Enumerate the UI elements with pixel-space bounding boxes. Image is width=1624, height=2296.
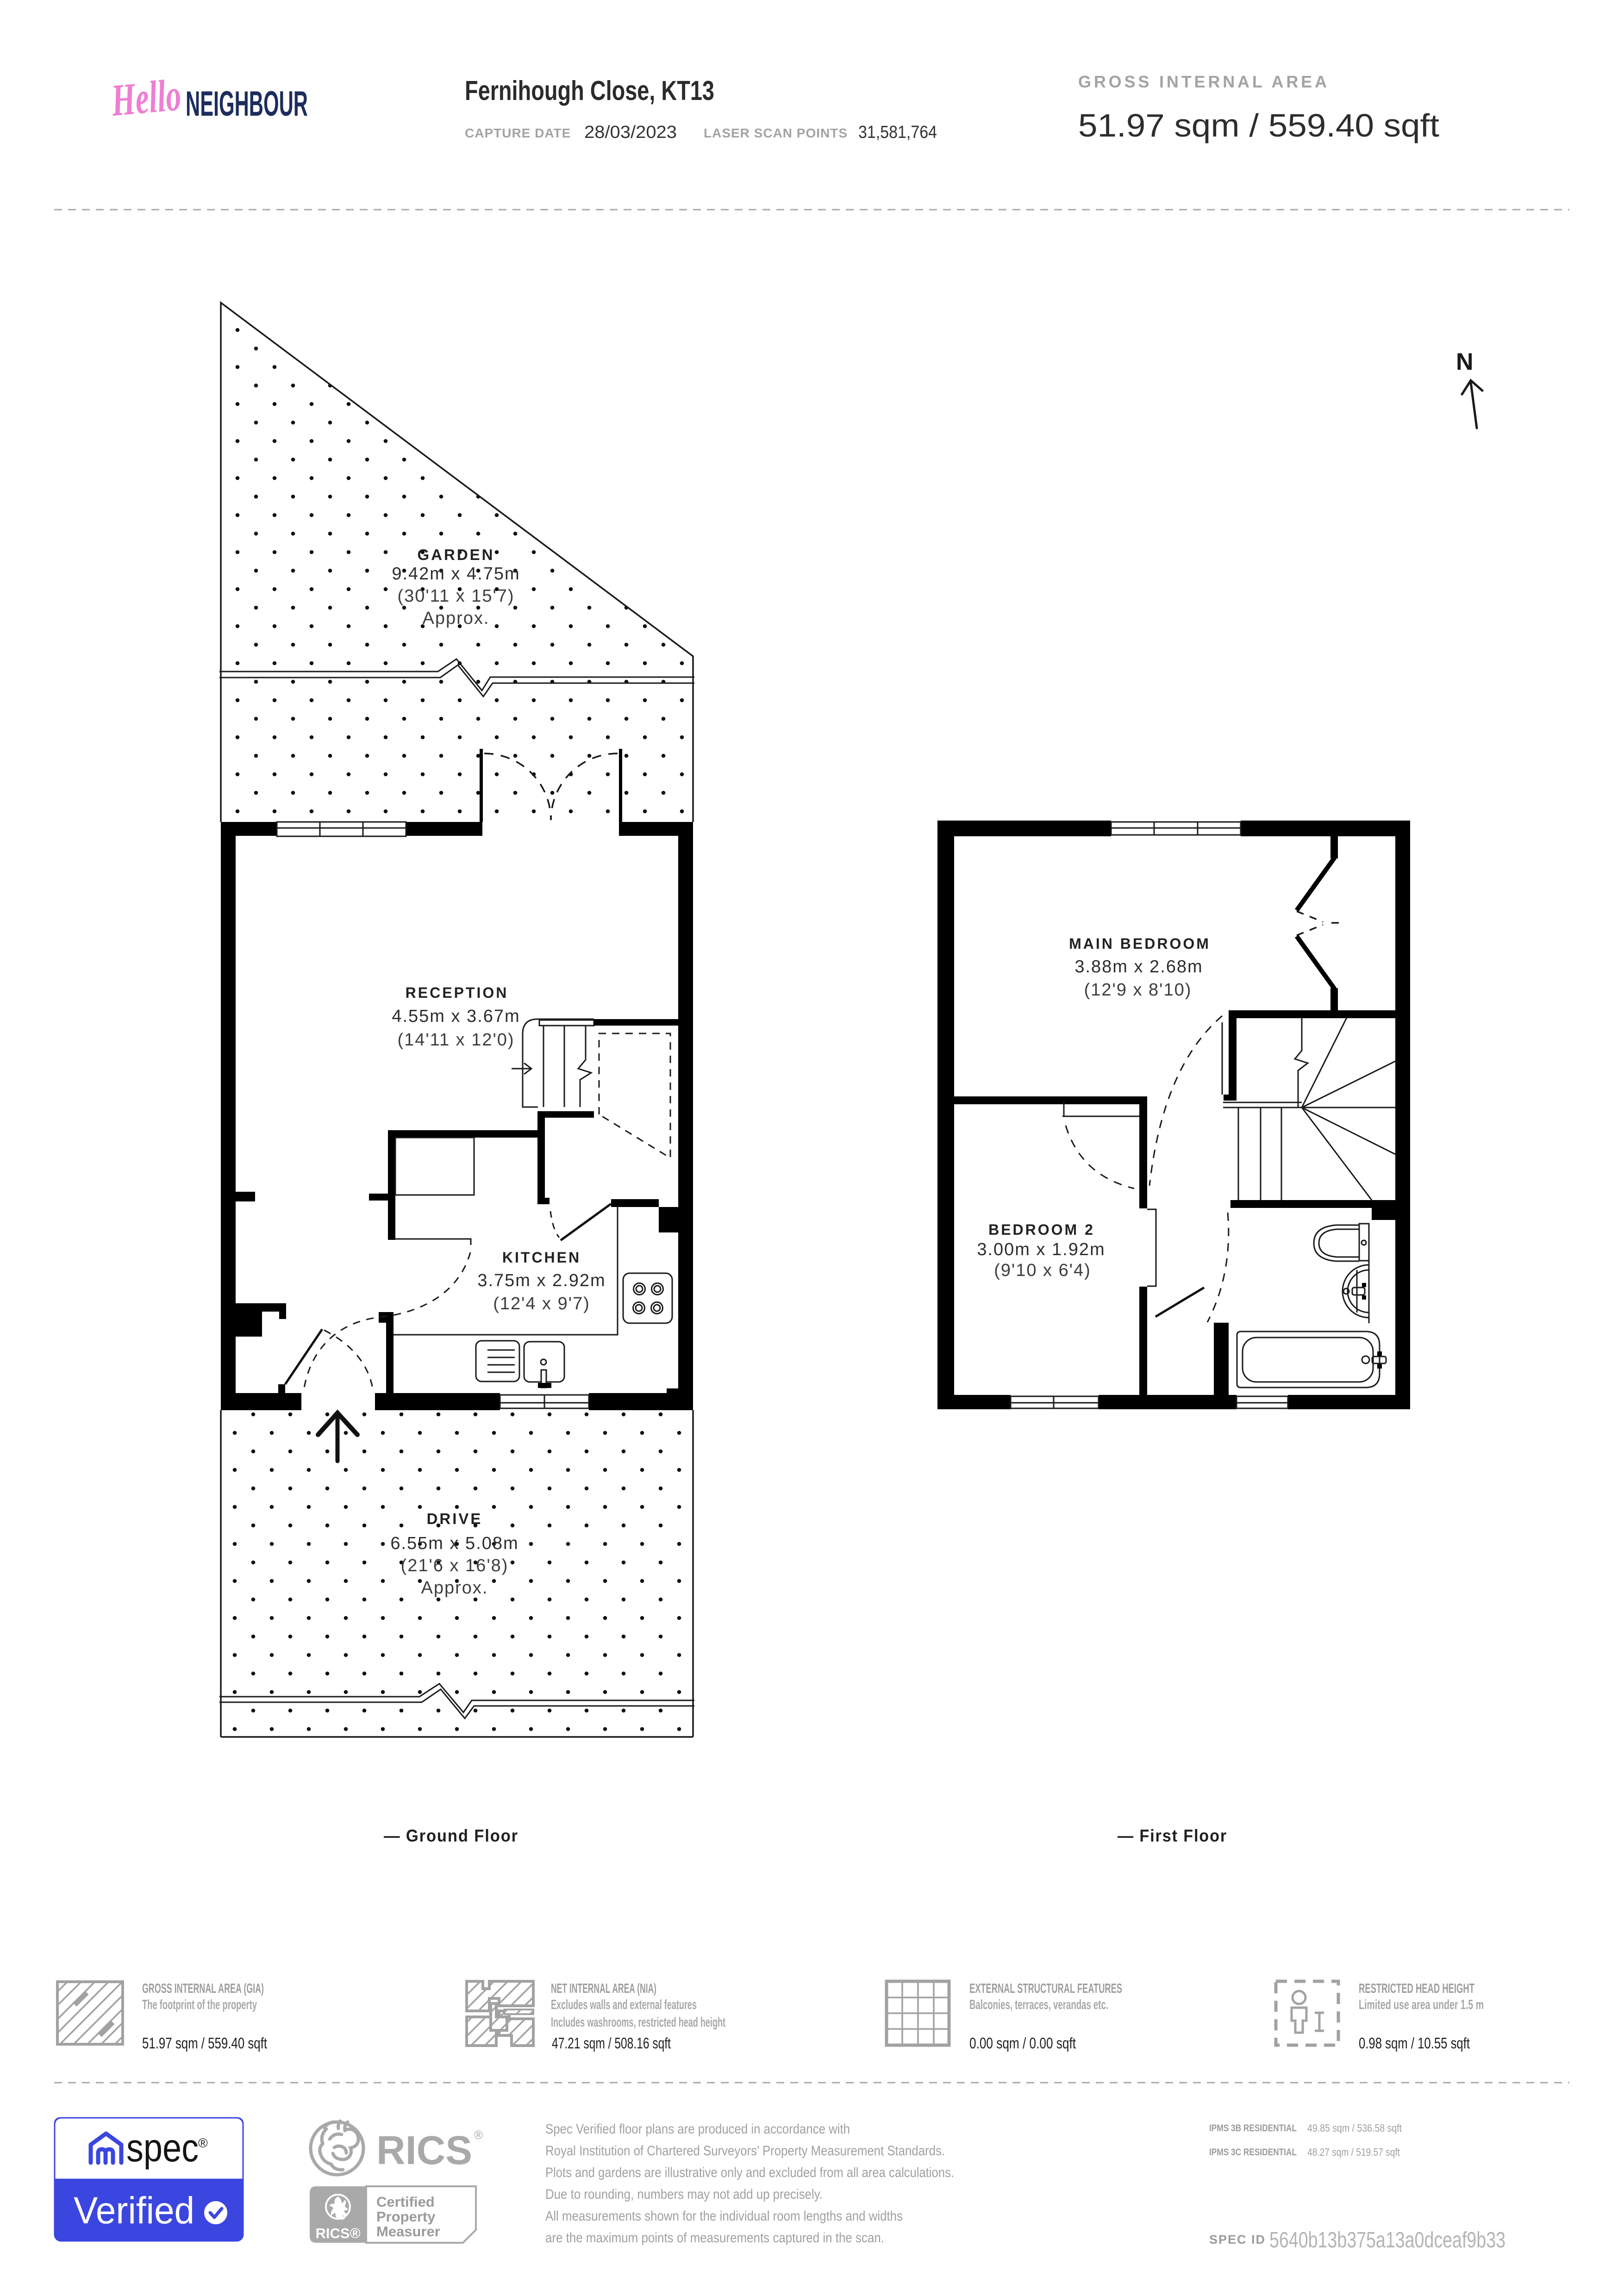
svg-text:Measurer: Measurer	[376, 2223, 440, 2240]
svg-text:Approx.: Approx.	[421, 1578, 488, 1598]
svg-text:51.97 sqm / 559.40 sqft: 51.97 sqm / 559.40 sqft	[1078, 107, 1439, 143]
svg-text:IPMS 3B RESIDENTIAL: IPMS 3B RESIDENTIAL	[1209, 2123, 1297, 2134]
svg-text:Fernihough Close, KT13: Fernihough Close, KT13	[465, 75, 714, 106]
svg-text:(30'11 x 15'7): (30'11 x 15'7)	[397, 586, 514, 606]
svg-text:Includes washrooms, restricted: Includes washrooms, restricted head heig…	[551, 2015, 725, 2030]
svg-text:BEDROOM 2: BEDROOM 2	[988, 1221, 1095, 1238]
svg-text:RICS®: RICS®	[316, 2225, 361, 2241]
svg-text:Royal Institution of Chartered: Royal Institution of Chartered Surveyors…	[545, 2143, 945, 2159]
svg-text:(12'4 x 9'7): (12'4 x 9'7)	[493, 1294, 590, 1313]
svg-text:are the maximum points of meas: are the maximum points of measurements c…	[545, 2230, 884, 2246]
svg-text:(12'9 x 8'10): (12'9 x 8'10)	[1084, 980, 1192, 1000]
svg-text:N: N	[1456, 348, 1474, 375]
svg-text:EXTERNAL STRUCTURAL FEATURES: EXTERNAL STRUCTURAL FEATURES	[969, 1981, 1122, 1996]
svg-text:The footprint of the property: The footprint of the property	[142, 1997, 257, 2012]
svg-text:(14'11 x 12'0): (14'11 x 12'0)	[397, 1030, 514, 1050]
svg-text:3.88m x 2.68m: 3.88m x 2.68m	[1074, 957, 1203, 977]
svg-text:0.98 sqm / 10.55 sqft: 0.98 sqm / 10.55 sqft	[1359, 2035, 1470, 2052]
svg-text:All measurements shown for the: All measurements shown for the individua…	[545, 2209, 903, 2224]
svg-text:NEIGHBOUR: NEIGHBOUR	[186, 84, 308, 124]
svg-text:3.00m x 1.92m: 3.00m x 1.92m	[977, 1240, 1105, 1259]
svg-text:49.85 sqm / 536.58 sqft: 49.85 sqm / 536.58 sqft	[1307, 2122, 1402, 2134]
svg-text:6.55m x 5.08m: 6.55m x 5.08m	[390, 1534, 518, 1553]
svg-text:0.00 sqm / 0.00 sqft: 0.00 sqm / 0.00 sqft	[969, 2035, 1076, 2052]
svg-text:31,581,764: 31,581,764	[858, 123, 937, 142]
svg-text:(9'10 x 6'4): (9'10 x 6'4)	[994, 1261, 1091, 1280]
svg-text:— First Floor: — First Floor	[1118, 1826, 1227, 1845]
svg-text:RESTRICTED HEAD HEIGHT: RESTRICTED HEAD HEIGHT	[1359, 1981, 1474, 1996]
svg-text:Limited use area under 1.5 m: Limited use area under 1.5 m	[1359, 1997, 1484, 2012]
svg-text:GARDEN: GARDEN	[417, 546, 494, 563]
svg-text:DRIVE: DRIVE	[427, 1510, 483, 1527]
svg-text:— Ground Floor: — Ground Floor	[384, 1826, 518, 1845]
svg-text:KITCHEN: KITCHEN	[502, 1249, 581, 1266]
svg-text:SPEC ID: SPEC ID	[1209, 2233, 1266, 2246]
svg-text:®: ®	[198, 2136, 208, 2150]
svg-text:NET INTERNAL AREA (NIA): NET INTERNAL AREA (NIA)	[551, 1981, 656, 1996]
svg-text:Verified: Verified	[74, 2190, 194, 2232]
svg-text:Excludes walls and external fe: Excludes walls and external features	[551, 1997, 697, 2012]
svg-text:47.21 sqm / 508.16 sqft: 47.21 sqm / 508.16 sqft	[552, 2035, 671, 2052]
svg-text:(21'6 x 16'8): (21'6 x 16'8)	[401, 1556, 509, 1575]
svg-text:CAPTURE DATE: CAPTURE DATE	[465, 126, 571, 140]
svg-text:RECEPTION: RECEPTION	[406, 984, 509, 1001]
svg-text:9.42m x 4.75m: 9.42m x 4.75m	[392, 564, 520, 584]
svg-text:Due to rounding, numbers may n: Due to rounding, numbers may not add up …	[545, 2187, 823, 2202]
svg-text:Spec Verified floor plans are: Spec Verified floor plans are produced i…	[545, 2122, 850, 2137]
svg-text:Property: Property	[376, 2209, 436, 2225]
svg-text:51.97 sqm / 559.40 sqft: 51.97 sqm / 559.40 sqft	[142, 2035, 267, 2052]
svg-text:Certified: Certified	[376, 2194, 435, 2210]
svg-text:MAIN BEDROOM: MAIN BEDROOM	[1069, 935, 1211, 952]
svg-text:IPMS 3C RESIDENTIAL: IPMS 3C RESIDENTIAL	[1209, 2147, 1297, 2158]
svg-text:48.27 sqm / 519.57 sqft: 48.27 sqm / 519.57 sqft	[1307, 2146, 1400, 2158]
svg-text:Approx.: Approx.	[423, 609, 490, 628]
svg-text:4.55m x 3.67m: 4.55m x 3.67m	[392, 1007, 520, 1026]
svg-text:5640b13b375a13a0dceaf9b33: 5640b13b375a13a0dceaf9b33	[1269, 2228, 1505, 2252]
svg-text:RICS: RICS	[376, 2128, 472, 2173]
svg-text:Hello: Hello	[109, 70, 183, 126]
svg-text:LASER SCAN POINTS: LASER SCAN POINTS	[704, 126, 848, 140]
svg-text:®: ®	[474, 2128, 483, 2142]
svg-text:Plots and gardens are illustra: Plots and gardens are illustrative only …	[545, 2165, 954, 2180]
svg-text:3.75m x 2.92m: 3.75m x 2.92m	[477, 1271, 606, 1290]
svg-text:GROSS INTERNAL AREA (GIA): GROSS INTERNAL AREA (GIA)	[142, 1981, 264, 1996]
svg-text:spec: spec	[126, 2126, 199, 2170]
svg-text:GROSS INTERNAL AREA: GROSS INTERNAL AREA	[1078, 72, 1328, 91]
svg-text:Balconies, terraces, verandas: Balconies, terraces, verandas etc.	[969, 1997, 1108, 2012]
svg-text:28/03/2023: 28/03/2023	[584, 123, 677, 142]
